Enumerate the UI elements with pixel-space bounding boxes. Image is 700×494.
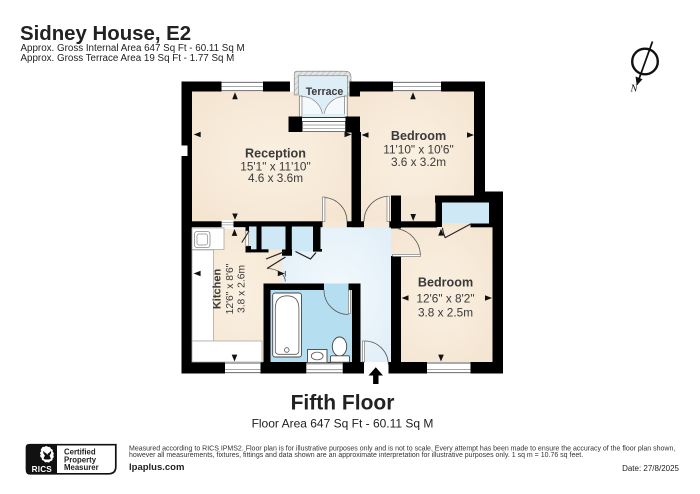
svg-text:12'6" x 8'6": 12'6" x 8'6" xyxy=(225,263,236,314)
svg-text:Bedroom: Bedroom xyxy=(418,275,473,289)
svg-text:N: N xyxy=(630,84,639,95)
svg-text:Bedroom: Bedroom xyxy=(391,129,446,143)
svg-text:Fifth Floor: Fifth Floor xyxy=(291,392,395,415)
svg-text:11'10" x 10'6": 11'10" x 10'6" xyxy=(383,142,453,156)
svg-text:3.6 x 3.2m: 3.6 x 3.2m xyxy=(391,155,446,169)
svg-text:12'6" x 8'2": 12'6" x 8'2" xyxy=(416,292,474,306)
svg-text:Sidney House, E2: Sidney House, E2 xyxy=(20,23,191,45)
svg-text:Measurer: Measurer xyxy=(64,463,99,472)
svg-text:RICS: RICS xyxy=(32,465,53,474)
svg-text:lpaplus.com: lpaplus.com xyxy=(129,462,184,473)
svg-text:3.8 x 2.6m: 3.8 x 2.6m xyxy=(236,265,247,313)
svg-text:Floor Area 647 Sq Ft - 60.11 S: Floor Area 647 Sq Ft - 60.11 Sq M xyxy=(252,417,434,431)
svg-text:Date: 27/8/2025: Date: 27/8/2025 xyxy=(622,464,679,473)
svg-text:Reception: Reception xyxy=(245,146,306,160)
svg-text:Terrace: Terrace xyxy=(306,86,344,98)
svg-text:4.6 x 3.6m: 4.6 x 3.6m xyxy=(248,171,303,185)
svg-text:3.8 x 2.5m: 3.8 x 2.5m xyxy=(418,305,473,319)
svg-text:however all measurements, fixt: however all measurements, fixtures, fitt… xyxy=(129,452,583,459)
svg-text:Approx. Gross Terrace Area 19: Approx. Gross Terrace Area 19 Sq Ft - 1.… xyxy=(21,53,235,64)
svg-text:Kitchen: Kitchen xyxy=(212,269,224,310)
